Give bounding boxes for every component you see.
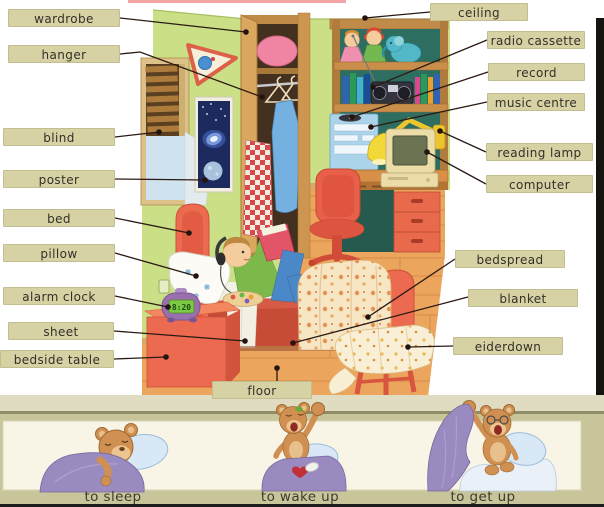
label-poster: poster [3, 170, 115, 188]
top-edge-artifact [128, 0, 346, 3]
label-wardrobe: wardrobe [8, 9, 120, 27]
room-scene: 8:20 [141, 10, 455, 397]
label-blanket: blanket [468, 289, 578, 307]
label-bedspread: bedspread [455, 250, 565, 268]
label-sheet: sheet [8, 322, 114, 340]
label-pillow: pillow [3, 244, 115, 262]
desk-drawers [394, 192, 440, 252]
label-bed: bed [3, 209, 115, 227]
label-record: record [488, 63, 585, 81]
hanging-dress [272, 100, 300, 213]
caption-to-wake-up: to wake up [250, 489, 350, 505]
label-blind: blind [3, 128, 115, 146]
hat [257, 36, 297, 66]
label-floor: floor [212, 381, 312, 399]
right-edge-artifact [596, 18, 604, 415]
caption-to-sleep: to sleep [63, 489, 163, 505]
label-computer: computer [486, 175, 593, 193]
wardrobe [241, 13, 310, 258]
alarm-clock-time: 8:20 [172, 303, 191, 312]
checkered-cloth [243, 140, 273, 240]
space-poster [195, 97, 233, 192]
label-alarm-clock: alarm clock [3, 287, 115, 305]
computer [381, 129, 438, 187]
label-ceiling: ceiling [430, 3, 528, 21]
caption-to-get-up: to get up [433, 489, 533, 505]
label-radio-cassette: radio cassette [487, 31, 585, 49]
label-eiderdown: eiderdown [453, 337, 563, 355]
bedroom-vocabulary-worksheet: 8:20 [0, 0, 604, 507]
label-reading-lamp: reading lamp [486, 143, 593, 161]
light-switch [159, 280, 169, 293]
label-hanger: hanger [8, 45, 120, 63]
label-bedside-table: bedside table [0, 350, 114, 368]
label-music-centre: music centre [487, 93, 585, 111]
eiderdown [335, 325, 434, 374]
